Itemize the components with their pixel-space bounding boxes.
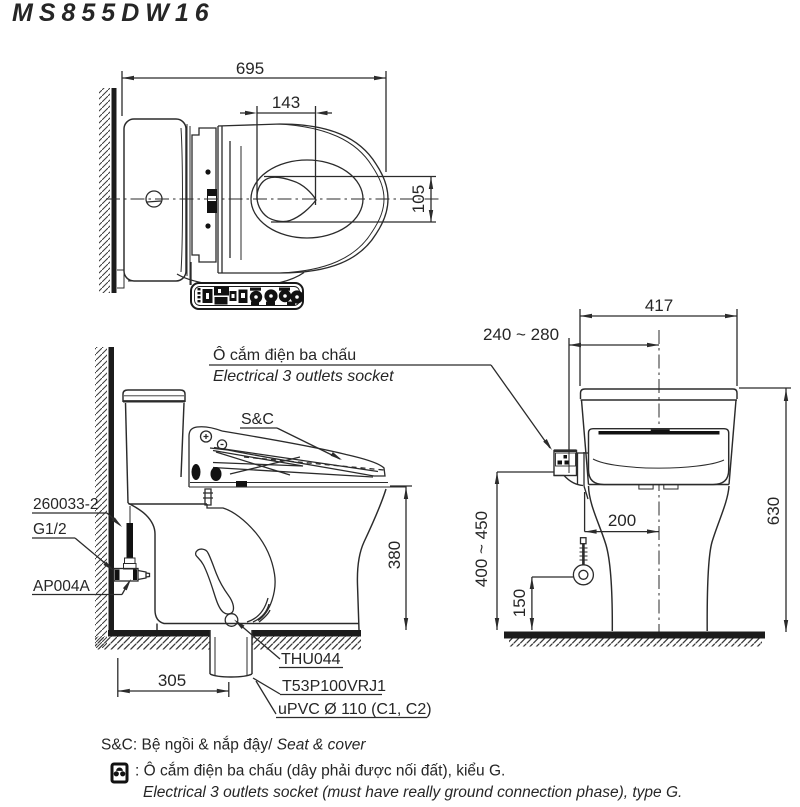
svg-text:S&C: Bệ ngồi & nắp đậy/ Seat &: S&C: Bệ ngồi & nắp đậy/ Seat & cover: [101, 737, 366, 754]
svg-text:Ô cắm điện ba chấu: Ô cắm điện ba chấu: [213, 345, 356, 364]
svg-text:400 ~ 450: 400 ~ 450: [472, 511, 491, 587]
svg-text:Electrical 3 outlets socket (m: Electrical 3 outlets socket (must have r…: [143, 784, 682, 801]
svg-text:150: 150: [510, 589, 529, 617]
svg-text:G1/2: G1/2: [33, 521, 67, 538]
svg-text:380: 380: [385, 541, 404, 569]
svg-text:uPVC Ø 110 (C1, C2): uPVC Ø 110 (C1, C2): [278, 701, 432, 718]
svg-text:260033-2: 260033-2: [33, 496, 99, 513]
svg-text:AP004A: AP004A: [33, 578, 91, 595]
svg-text:Electrical 3 outlets socket: Electrical 3 outlets socket: [213, 368, 394, 385]
svg-text:T53P100VRJ1: T53P100VRJ1: [282, 678, 386, 695]
svg-text:240 ~ 280: 240 ~ 280: [483, 325, 559, 344]
svg-text:200: 200: [608, 511, 636, 530]
svg-text:: Ô cắm điện ba chấu (dây phải: : Ô cắm điện ba chấu (dây phải được nối …: [135, 763, 505, 780]
svg-text:695: 695: [236, 59, 264, 78]
svg-text:143: 143: [272, 93, 300, 112]
svg-text:305: 305: [158, 671, 186, 690]
svg-text:417: 417: [645, 296, 673, 315]
svg-text:630: 630: [764, 497, 783, 525]
svg-text:THU044: THU044: [281, 651, 341, 668]
svg-text:MS855DW16: MS855DW16: [12, 0, 215, 27]
svg-text:105: 105: [409, 185, 428, 213]
svg-text:S&C: S&C: [241, 411, 274, 428]
